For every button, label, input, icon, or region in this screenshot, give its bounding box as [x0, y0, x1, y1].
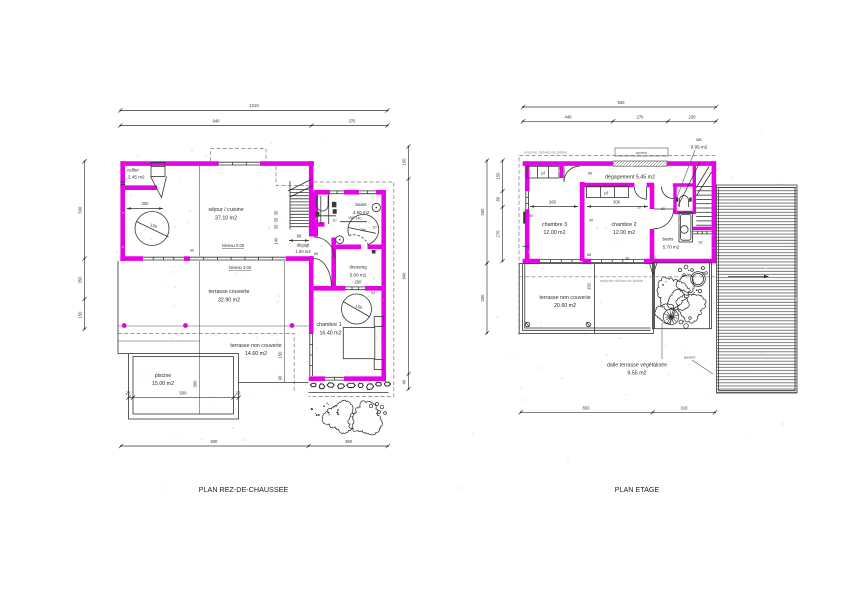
svg-text:30: 30	[589, 219, 593, 223]
svg-text:93: 93	[371, 291, 375, 295]
svg-text:500: 500	[78, 206, 83, 214]
svg-text:35: 35	[274, 217, 279, 222]
svg-text:piscine: piscine	[155, 373, 172, 379]
svg-text:5.00 m2: 5.00 m2	[350, 273, 367, 278]
svg-text:260: 260	[549, 200, 557, 205]
svg-text:wc: wc	[696, 137, 702, 142]
svg-text:270: 270	[637, 114, 645, 119]
svg-text:chambre 3: chambre 3	[542, 222, 567, 228]
svg-text:10: 10	[333, 219, 337, 223]
svg-text:20: 20	[373, 226, 377, 230]
svg-text:86: 86	[588, 172, 592, 176]
svg-text:chambre 1: chambre 1	[316, 322, 341, 328]
svg-text:370: 370	[349, 119, 357, 124]
svg-text:20: 20	[126, 391, 131, 396]
svg-text:terrasse non couverte: terrasse non couverte	[539, 295, 590, 301]
svg-text:35: 35	[274, 210, 279, 215]
svg-text:300: 300	[193, 380, 198, 388]
svg-text:440: 440	[565, 114, 573, 119]
svg-text:310: 310	[681, 405, 689, 410]
svg-text:37.10 m2: 37.10 m2	[215, 216, 237, 222]
svg-text:dégagt: dégagt	[297, 243, 311, 248]
svg-text:cellier: cellier	[127, 168, 139, 173]
svg-text:90: 90	[190, 249, 194, 253]
svg-text:86: 86	[314, 252, 318, 256]
svg-text:16.40 m2: 16.40 m2	[319, 331, 341, 337]
svg-text:940: 940	[618, 100, 626, 105]
svg-text:940: 940	[402, 272, 407, 280]
svg-text:14.60 m2: 14.60 m2	[245, 351, 267, 357]
svg-text:90: 90	[297, 234, 302, 239]
svg-text:90: 90	[529, 214, 533, 218]
svg-text:chambre 2: chambre 2	[611, 222, 636, 228]
svg-text:250: 250	[355, 280, 363, 285]
svg-text:650: 650	[583, 405, 591, 410]
svg-text:150: 150	[496, 172, 501, 180]
svg-text:150: 150	[78, 311, 83, 319]
svg-text:bains: bains	[663, 237, 675, 242]
svg-text:350: 350	[78, 276, 83, 284]
svg-text:pl: pl	[541, 171, 544, 176]
svg-text:bains: bains	[356, 202, 368, 207]
svg-text:0.95 m2: 0.95 m2	[691, 145, 708, 150]
svg-text:140: 140	[356, 217, 362, 221]
svg-text:150: 150	[402, 158, 407, 166]
svg-text:emprise débord de toiture: emprise débord de toiture	[524, 151, 567, 155]
svg-text:emprise débord de toiture: emprise débord de toiture	[600, 279, 643, 283]
svg-text:12.00 m2: 12.00 m2	[613, 230, 635, 236]
svg-text:140: 140	[274, 237, 279, 245]
svg-text:terrasse non couverte: terrasse non couverte	[230, 343, 281, 349]
svg-text:20.60 m2: 20.60 m2	[554, 303, 576, 309]
svg-text:250: 250	[480, 294, 485, 302]
svg-text:150: 150	[587, 282, 592, 290]
svg-text:40: 40	[402, 379, 407, 384]
svg-text:150: 150	[278, 351, 283, 359]
svg-text:230: 230	[689, 114, 697, 119]
svg-text:terrasse couverte: terrasse couverte	[209, 289, 250, 295]
svg-text:1.00 m2: 1.00 m2	[295, 249, 311, 254]
svg-text:190: 190	[348, 216, 354, 220]
svg-text:PLAN ETAGE: PLAN ETAGE	[615, 485, 660, 494]
svg-text:820: 820	[211, 439, 219, 444]
svg-text:15.00 m2: 15.00 m2	[152, 381, 174, 387]
svg-text:12.00 m2: 12.00 m2	[543, 230, 565, 236]
svg-text:1310: 1310	[249, 103, 259, 108]
svg-text:20: 20	[236, 391, 241, 396]
svg-text:9.55 m2: 9.55 m2	[627, 371, 646, 377]
svg-text:90: 90	[278, 375, 283, 380]
svg-text:270: 270	[496, 230, 501, 238]
svg-text:26: 26	[625, 257, 629, 261]
svg-text:80: 80	[661, 207, 665, 211]
svg-text:80: 80	[496, 196, 501, 201]
svg-text:Niveau 3.00: Niveau 3.00	[229, 265, 252, 270]
svg-text:dressing: dressing	[349, 265, 367, 270]
svg-text:940: 940	[213, 119, 221, 124]
svg-text:pl: pl	[604, 191, 607, 196]
svg-text:306: 306	[613, 200, 621, 205]
svg-text:500: 500	[480, 208, 485, 216]
svg-text:500: 500	[180, 391, 188, 396]
svg-text:10: 10	[637, 206, 641, 210]
svg-text:dégagement 5.45 m2: dégagement 5.45 m2	[605, 175, 655, 181]
svg-text:35: 35	[274, 224, 279, 229]
svg-text:dalle terrasse végétalisée: dalle terrasse végétalisée	[607, 363, 667, 369]
svg-text:86: 86	[587, 253, 591, 257]
svg-text:PLAN REZ-DE-CHAUSSEE: PLAN REZ-DE-CHAUSSEE	[199, 485, 289, 494]
svg-text:auvent: auvent	[684, 356, 696, 360]
svg-text:2.45 m2: 2.45 m2	[128, 175, 145, 180]
svg-text:32.90 m2: 32.90 m2	[218, 298, 240, 304]
svg-text:5.70 m2: 5.70 m2	[663, 245, 680, 250]
svg-text:92: 92	[699, 241, 703, 245]
svg-text:séjour / cuisine: séjour / cuisine	[208, 207, 243, 213]
svg-text:300: 300	[142, 201, 150, 206]
svg-text:auvent: auvent	[636, 151, 648, 155]
svg-text:Niveau 0.00: Niveau 0.00	[222, 243, 245, 248]
svg-text:360: 360	[345, 439, 353, 444]
